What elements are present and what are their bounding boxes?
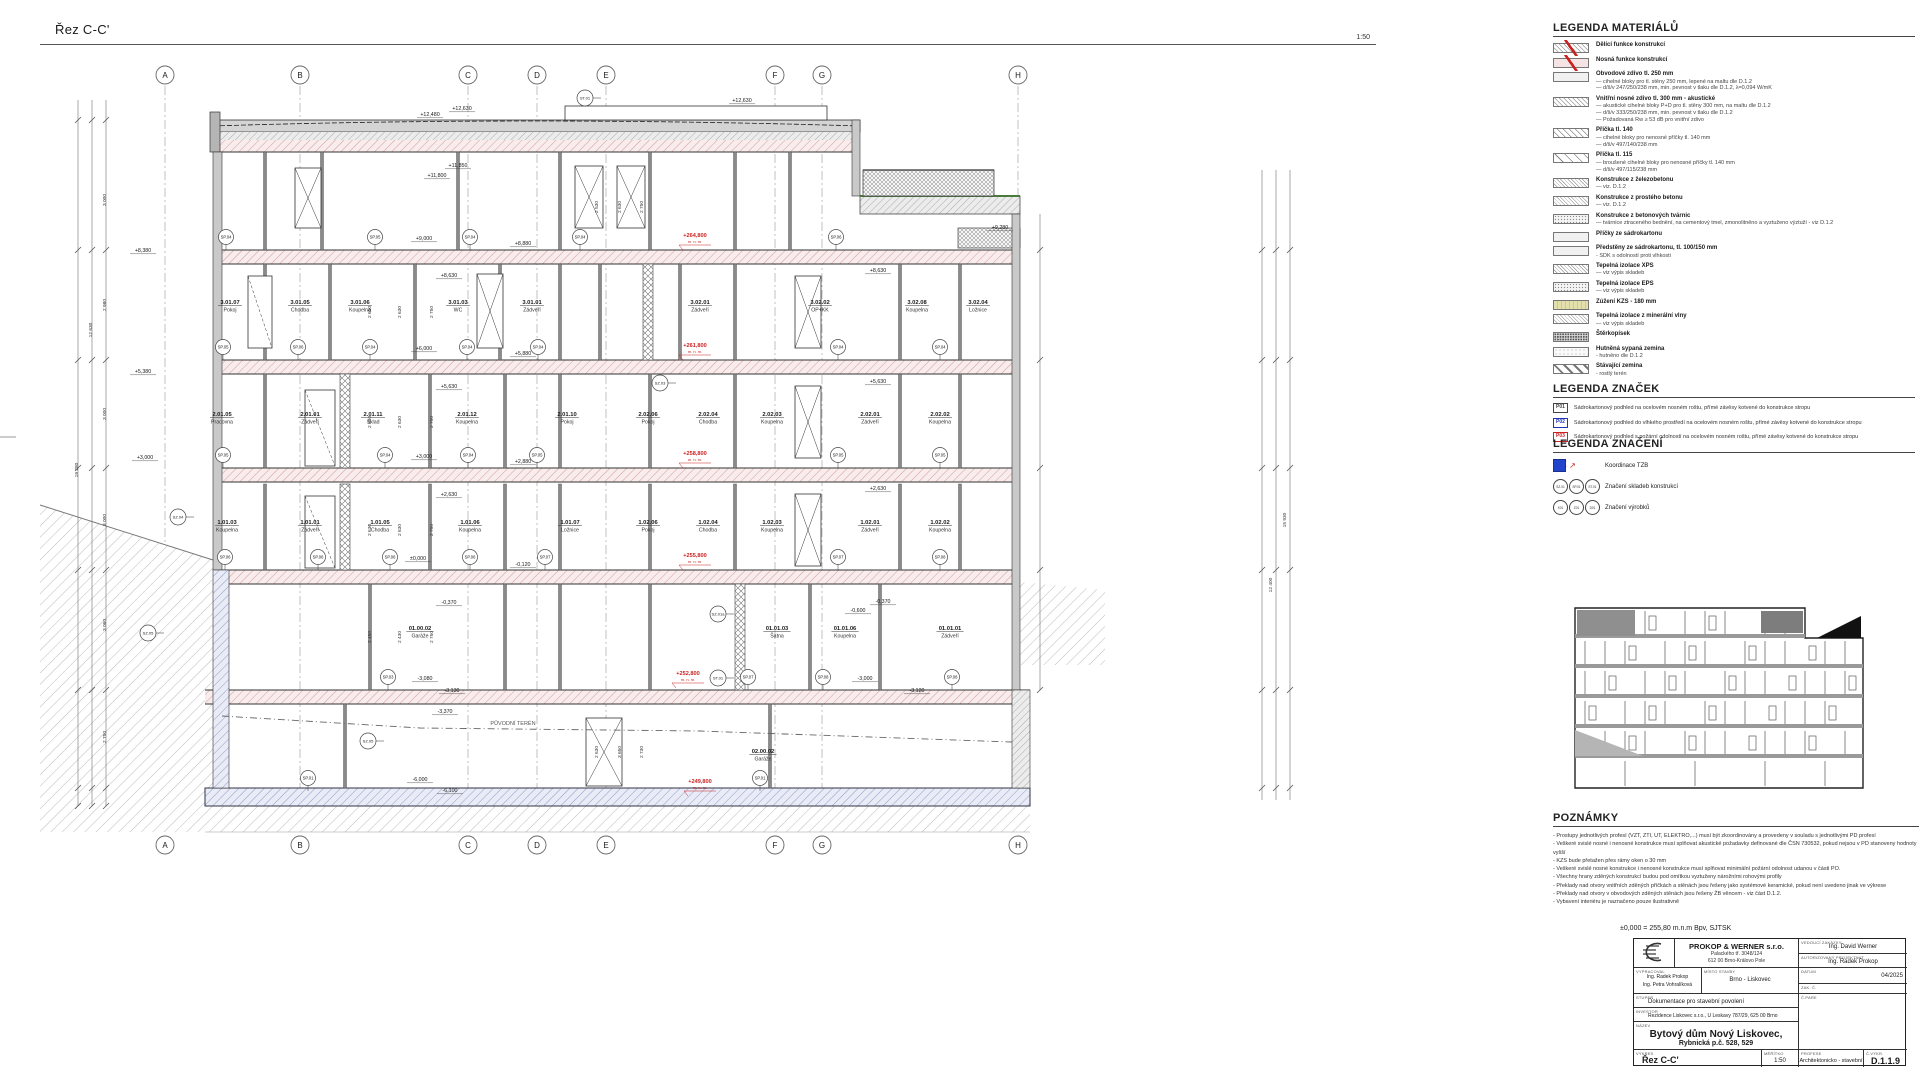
svg-text:±0,000: ±0,000 xyxy=(410,556,426,562)
svg-text:3.01.07: 3.01.07 xyxy=(220,300,239,306)
svg-text:SP.01: SP.01 xyxy=(303,776,315,781)
svg-text:H: H xyxy=(1015,71,1021,80)
svg-text:SP.01: SP.01 xyxy=(755,776,767,781)
svg-text:-6,000: -6,000 xyxy=(412,777,427,783)
svg-text:01.01.03: 01.01.03 xyxy=(766,626,789,632)
roof xyxy=(210,106,1020,214)
legend-material-item: Konstrukce z železobetonu— viz. D.1.2 xyxy=(1553,177,1915,191)
legend-material-item: Tepelná izolace EPS— viz výpis skladeb xyxy=(1553,281,1915,295)
svg-text:Zádveří: Zádveří xyxy=(301,420,319,426)
material-hatch-swatch xyxy=(1553,128,1589,138)
svg-text:SP.06: SP.06 xyxy=(831,235,843,240)
svg-text:SZ.01a: SZ.01a xyxy=(712,612,726,617)
svg-text:Ložnice: Ložnice xyxy=(561,528,579,534)
svg-text:2.02.03: 2.02.03 xyxy=(762,412,782,418)
notes-list: - Prostupy jednotlivých profesí (VZT, ZT… xyxy=(1553,832,1919,906)
material-description: — d/š/v 333/250/238 mm, min. pevnost v t… xyxy=(1596,110,1771,117)
svg-text:C: C xyxy=(465,71,471,80)
svg-text:2 750: 2 750 xyxy=(429,631,435,643)
scale-value: 1:50 xyxy=(1762,1058,1798,1064)
marker-circle: Z01 xyxy=(1569,500,1584,515)
svg-text:D: D xyxy=(534,841,540,850)
svg-text:m. n. m.: m. n. m. xyxy=(688,457,702,462)
svg-text:02.00.02: 02.00.02 xyxy=(752,749,775,755)
svg-text:1.01.03: 1.01.03 xyxy=(217,520,237,526)
svg-text:SP.04: SP.04 xyxy=(465,235,477,240)
authorized-engineer: Ing. Radek Prokop xyxy=(1799,959,1907,965)
svg-text:Koupelna: Koupelna xyxy=(456,420,478,426)
note-line: - Veškeré svislé nosné i nenosné konstru… xyxy=(1553,840,1919,857)
legend-symbols: LEGENDA ZNAČENÍ ✕↗Koordinace TZBSZ.01SP.… xyxy=(1553,438,1915,521)
svg-text:SP.03: SP.03 xyxy=(383,675,395,680)
material-description: - SDK s odolností proti vlhkosti xyxy=(1596,253,1717,260)
svg-text:2.01.11: 2.01.11 xyxy=(363,412,383,418)
svg-text:19 280: 19 280 xyxy=(74,462,80,477)
svg-text:+11,800: +11,800 xyxy=(428,173,447,179)
company-logo xyxy=(1634,939,1672,965)
svg-text:2 630: 2 630 xyxy=(617,201,623,213)
svg-text:Pokoj: Pokoj xyxy=(561,420,574,426)
legend-marks-title: LEGENDA ZNAČEK xyxy=(1553,383,1915,398)
svg-text:m. n. m.: m. n. m. xyxy=(688,239,702,244)
material-hatch-swatch xyxy=(1553,58,1589,68)
svg-text:Zádveří: Zádveří xyxy=(861,528,879,534)
svg-text:3.01.05: 3.01.05 xyxy=(290,300,310,306)
legend-material-item: Stávající zemina- rostlý terén xyxy=(1553,363,1915,377)
legend-symbol-item: SZ.01SP.01ST.01Značení skladeb konstrukc… xyxy=(1553,479,1915,494)
svg-text:SP.04: SP.04 xyxy=(463,453,475,458)
material-hatch-swatch xyxy=(1553,153,1589,163)
svg-text:+12,630: +12,630 xyxy=(732,98,751,104)
svg-text:01.00.02: 01.00.02 xyxy=(409,626,432,632)
legend-material-item: Obvodové zdivo tl. 250 mm— cihelné bloky… xyxy=(1553,71,1915,92)
material-hatch-swatch xyxy=(1553,246,1589,256)
material-hatch-swatch xyxy=(1553,300,1589,310)
mark-code-chip: P01 xyxy=(1553,403,1568,413)
svg-text:Pokoj: Pokoj xyxy=(642,528,655,534)
svg-text:SZ.05: SZ.05 xyxy=(143,631,154,636)
svg-text:Koupelna: Koupelna xyxy=(761,420,783,426)
svg-text:SP.05: SP.05 xyxy=(370,235,382,240)
legend-material-item: Konstrukce z prostého betonu— viz. D.1.2 xyxy=(1553,195,1915,209)
svg-text:3 000: 3 000 xyxy=(102,194,108,206)
legend-material-item: Tepelná izolace z minerální vlny— viz vý… xyxy=(1553,313,1915,327)
svg-text:D: D xyxy=(534,71,540,80)
svg-text:2 530: 2 530 xyxy=(594,201,600,213)
site: Brno - Liskovec xyxy=(1702,977,1798,983)
svg-text:Garáže: Garáže xyxy=(754,757,771,763)
svg-text:Zádveří: Zádveří xyxy=(523,308,541,314)
svg-text:+6,000: +6,000 xyxy=(416,346,432,352)
svg-text:+8,380: +8,380 xyxy=(135,248,151,254)
svg-text:-3,120: -3,120 xyxy=(909,688,924,694)
profession: Architektonicko - stavební xyxy=(1799,1058,1863,1064)
material-hatch-swatch xyxy=(1553,232,1589,242)
marker-circle: SP.01 xyxy=(1569,479,1584,494)
svg-text:OP+KK: OP+KK xyxy=(811,308,829,314)
material-description: — broušené cihelné bloky pro nenosné pří… xyxy=(1596,160,1735,167)
svg-text:2.01.01: 2.01.01 xyxy=(300,412,320,418)
svg-text:Koupelna: Koupelna xyxy=(216,528,238,534)
svg-text:Koupelna: Koupelna xyxy=(761,528,783,534)
legend-materials-title: LEGENDA MATERIÁLŮ xyxy=(1553,22,1915,37)
legend-marks: LEGENDA ZNAČEK P01Sádrokartonový podhled… xyxy=(1553,383,1915,447)
svg-text:2 750: 2 750 xyxy=(429,416,435,428)
svg-text:SP.04: SP.04 xyxy=(380,453,392,458)
svg-text:3 650: 3 650 xyxy=(617,746,623,758)
svg-text:F: F xyxy=(773,71,778,80)
material-title: Příčka tl. 115 xyxy=(1596,152,1735,160)
legend-materials-list: Dělící funkce konstrukcíNosná funkce kon… xyxy=(1553,42,1915,378)
symbol-label: Značení výrobků xyxy=(1605,505,1649,511)
svg-text:2.01.05: 2.01.05 xyxy=(212,412,232,418)
svg-text:SP.06: SP.06 xyxy=(313,555,325,560)
svg-text:B: B xyxy=(297,71,302,80)
svg-text:2 980: 2 980 xyxy=(102,299,108,311)
svg-text:+2,880: +2,880 xyxy=(515,459,531,465)
svg-text:12 630: 12 630 xyxy=(88,322,94,337)
notes-title: POZNÁMKY xyxy=(1553,812,1919,827)
legend-mark-item: P01Sádrokartonový podhled na ocelovém no… xyxy=(1553,403,1915,413)
svg-text:2 430: 2 430 xyxy=(397,631,403,643)
material-description: — viz. D.1.2 xyxy=(1596,202,1683,209)
svg-text:-3,370: -3,370 xyxy=(437,709,452,715)
svg-text:SZ.04: SZ.04 xyxy=(173,515,184,520)
svg-text:01.01.01: 01.01.01 xyxy=(939,626,962,632)
svg-text:F: F xyxy=(773,841,778,850)
legend-material-item: Tepelná izolace XPS— viz výpis skladeb xyxy=(1553,263,1915,277)
svg-text:A: A xyxy=(162,71,168,80)
svg-text:Chodba: Chodba xyxy=(291,308,309,314)
svg-text:SZ.05: SZ.05 xyxy=(363,739,374,744)
svg-text:2 630: 2 630 xyxy=(397,524,403,536)
svg-text:+9,000: +9,000 xyxy=(416,236,432,242)
firm-address: Palackého tř. 3048/124612 00 Brno-Králov… xyxy=(1675,951,1798,964)
svg-text:SP.06: SP.06 xyxy=(293,345,305,350)
svg-text:15 930: 15 930 xyxy=(1282,512,1288,527)
project-name-2: Rybnická p.č. 528, 529 xyxy=(1634,1040,1798,1047)
firm-name: PROKOP & WERNER s.r.o. xyxy=(1675,942,1798,951)
note-line: - Překlady nad otvory v obvodových zděný… xyxy=(1553,890,1919,898)
svg-text:3.02.01: 3.02.01 xyxy=(690,300,710,306)
svg-text:PŮVODNÍ TERÉN: PŮVODNÍ TERÉN xyxy=(490,720,535,727)
svg-text:A: A xyxy=(162,841,168,850)
svg-text:-0,120: -0,120 xyxy=(515,562,530,568)
svg-text:2 730: 2 730 xyxy=(639,746,645,758)
project-name-1: Bytový dům Nový Liskovec, xyxy=(1634,1029,1798,1040)
svg-text:Zádveří: Zádveří xyxy=(941,634,959,640)
material-title: Dělící funkce konstrukcí xyxy=(1596,42,1665,50)
svg-text:1.01.01: 1.01.01 xyxy=(300,520,320,526)
svg-text:3 000: 3 000 xyxy=(102,408,108,420)
material-title: Zúžení KZS - 180 mm xyxy=(1596,299,1656,307)
label-scale: MĚŘÍTKO xyxy=(1764,1051,1784,1056)
legend-material-item: Předstěny ze sádrokartonu, tl. 100/150 m… xyxy=(1553,245,1915,259)
svg-text:+5,630: +5,630 xyxy=(441,384,457,390)
svg-text:2.01.12: 2.01.12 xyxy=(457,412,476,418)
svg-text:Chodba: Chodba xyxy=(699,528,717,534)
svg-text:SZ.03: SZ.03 xyxy=(655,381,666,386)
svg-text:SP.07: SP.07 xyxy=(833,555,845,560)
material-title: Hutněná sypaná zemina xyxy=(1596,346,1664,354)
marker-circles-icon: SZ.01SP.01ST.01 xyxy=(1553,479,1605,494)
material-hatch-swatch xyxy=(1553,282,1589,292)
svg-text:2 450: 2 450 xyxy=(367,631,373,643)
svg-text:E: E xyxy=(603,841,608,850)
svg-text:+9,280: +9,280 xyxy=(992,225,1008,231)
svg-text:E: E xyxy=(603,71,608,80)
mark-description: Sádrokartonový podhled na ocelovém nosné… xyxy=(1574,405,1810,411)
drawing-sheet: { "sheet": { "title": "Řez C-C'", "scale… xyxy=(0,0,1920,1086)
material-title: Příčky ze sádrokartonu xyxy=(1596,231,1662,239)
svg-text:12 400: 12 400 xyxy=(1268,577,1274,592)
material-hatch-swatch xyxy=(1553,43,1589,53)
svg-text:2 650: 2 650 xyxy=(367,416,373,428)
svg-text:SP.04: SP.04 xyxy=(462,345,474,350)
svg-text:01.01.06: 01.01.06 xyxy=(834,626,857,632)
material-title: Vnitřní nosné zdivo tl. 300 mm - akustic… xyxy=(1596,96,1771,104)
svg-text:Ložnice: Ložnice xyxy=(969,308,987,314)
material-hatch-swatch xyxy=(1553,196,1589,206)
material-title: Obvodové zdivo tl. 250 mm xyxy=(1596,71,1772,79)
material-title: Nosná funkce konstrukcí xyxy=(1596,57,1667,65)
material-title: Stávající zemina xyxy=(1596,363,1642,371)
material-description: — d/š/v 247/250/238 mm, min. pevnost v t… xyxy=(1596,85,1772,92)
material-description: — akustické cihelné bloky P+D pro tl. st… xyxy=(1596,103,1771,110)
svg-text:-6,100: -6,100 xyxy=(442,788,457,794)
svg-text:SP.05: SP.05 xyxy=(935,453,947,458)
legend-material-item: Konstrukce z betonových tvárnic— tvárnic… xyxy=(1553,213,1915,227)
svg-text:2.02.01: 2.02.01 xyxy=(860,412,880,418)
svg-text:Zádveří: Zádveří xyxy=(861,420,879,426)
note-line: - KZS bude přetažen přes rámy oken o 30 … xyxy=(1553,857,1919,865)
material-title: Tepelná izolace z minerální vlny xyxy=(1596,313,1687,321)
svg-text:m. n. m.: m. n. m. xyxy=(681,677,695,682)
svg-text:SP.05: SP.05 xyxy=(218,453,230,458)
svg-text:-0,600: -0,600 xyxy=(850,608,865,614)
note-line: - Veškeré svislé nosné konstrukce i neno… xyxy=(1553,865,1919,873)
foundation-slab xyxy=(205,788,1030,806)
svg-text:Koupelna: Koupelna xyxy=(906,308,928,314)
marker-circles-icon: X01Z01D01 xyxy=(1553,500,1605,515)
svg-text:+2,630: +2,630 xyxy=(441,492,457,498)
drawing-name: Řez C-C' xyxy=(1634,1055,1761,1065)
material-title: Předstěny ze sádrokartonu, tl. 100/150 m… xyxy=(1596,245,1717,253)
legend-materials: LEGENDA MATERIÁLŮ Dělící funkce konstruk… xyxy=(1553,22,1915,381)
material-hatch-swatch xyxy=(1553,264,1589,274)
marker-circle: ST.01 xyxy=(1585,479,1600,494)
svg-text:Koupelna: Koupelna xyxy=(929,420,951,426)
svg-text:+5,880: +5,880 xyxy=(515,351,531,357)
svg-text:-3,000: -3,000 xyxy=(857,676,872,682)
material-hatch-swatch xyxy=(1553,314,1589,324)
svg-text:1.02.06: 1.02.06 xyxy=(638,520,658,526)
svg-text:m. n. m.: m. n. m. xyxy=(688,349,702,354)
svg-text:SP.06: SP.06 xyxy=(385,555,397,560)
svg-text:1.02.04: 1.02.04 xyxy=(698,520,718,526)
svg-text:SP.04: SP.04 xyxy=(221,235,233,240)
datum-note: ±0,000 = 255,80 m.n.m Bpv, SJTSK xyxy=(1620,925,1731,932)
svg-text:SP.07: SP.07 xyxy=(743,675,755,680)
legend-material-item: Štěrkopísek xyxy=(1553,331,1915,342)
material-title: Tepelná izolace XPS xyxy=(1596,263,1654,271)
legend-material-item: Zúžení KZS - 180 mm xyxy=(1553,299,1915,310)
material-title: Konstrukce z železobetonu xyxy=(1596,177,1673,185)
svg-text:SP.07: SP.07 xyxy=(540,555,552,560)
legend-symbol-item: ✕↗Koordinace TZB xyxy=(1553,458,1915,473)
marker-circle: X01 xyxy=(1553,500,1568,515)
svg-text:SP.04: SP.04 xyxy=(833,345,845,350)
legend-material-item: Nosná funkce konstrukcí xyxy=(1553,57,1915,68)
svg-text:1.02.03: 1.02.03 xyxy=(762,520,782,526)
note-line: - Překlady nad otvory vnitřních zděných … xyxy=(1553,882,1919,890)
symbol-label: Značení skladeb konstrukcí xyxy=(1605,484,1678,490)
svg-text:2 630: 2 630 xyxy=(397,306,403,318)
legend-material-item: Dělící funkce konstrukcí xyxy=(1553,42,1915,53)
svg-text:1.02.01: 1.02.01 xyxy=(860,520,880,526)
svg-text:SP.08: SP.08 xyxy=(947,675,959,680)
legend-material-item: Hutněná sypaná zemina- hutněno dle D.1.2 xyxy=(1553,346,1915,360)
svg-text:ST.01: ST.01 xyxy=(713,676,724,681)
svg-text:3 000: 3 000 xyxy=(102,514,108,526)
svg-text:+5,630: +5,630 xyxy=(870,379,886,385)
svg-text:SP.08: SP.08 xyxy=(818,675,830,680)
legend-symbol-item: X01Z01D01Značení výrobků xyxy=(1553,500,1915,515)
svg-text:+3,000: +3,000 xyxy=(137,455,153,461)
svg-text:SP.04: SP.04 xyxy=(365,345,377,350)
label-copy-no: Č.PARE xyxy=(1801,995,1817,1000)
svg-text:m. n. m.: m. n. m. xyxy=(688,559,702,564)
material-description: — viz výpis skladeb xyxy=(1596,288,1654,295)
note-line: - Všechny hrany zděných konstrukcí budou… xyxy=(1553,873,1919,881)
svg-text:1.01.06: 1.01.06 xyxy=(460,520,480,526)
svg-text:WC: WC xyxy=(454,308,463,314)
material-description: — cihelné bloky pro nenosné příčky tl. 1… xyxy=(1596,135,1710,142)
svg-text:3.01.03: 3.01.03 xyxy=(448,300,468,306)
legend-material-item: Příčky ze sádrokartonu xyxy=(1553,231,1915,242)
svg-text:2.01.10: 2.01.10 xyxy=(557,412,576,418)
svg-text:3.02.02: 3.02.02 xyxy=(810,300,829,306)
note-line: - Vybavení interiéru je naznačeno pouze … xyxy=(1553,898,1919,906)
svg-text:+8,630: +8,630 xyxy=(870,268,886,274)
label-order-no: ZAK. Č. xyxy=(1801,985,1816,990)
svg-text:2 630: 2 630 xyxy=(594,746,600,758)
svg-text:+12,630: +12,630 xyxy=(452,106,471,112)
tzb-coordination-icon: ✕↗ xyxy=(1553,459,1605,472)
made-by-1: Ing. Radek Prokop xyxy=(1634,974,1701,980)
svg-text:C: C xyxy=(465,841,471,850)
material-title: Konstrukce z betonových tvárnic xyxy=(1596,213,1833,221)
svg-text:2 750: 2 750 xyxy=(429,524,435,536)
material-description: — viz. D.1.2 xyxy=(1596,184,1673,191)
stage: Dokumentace pro stavební povolení xyxy=(1634,999,1798,1005)
svg-text:SP.06: SP.06 xyxy=(465,555,477,560)
svg-text:SP.04: SP.04 xyxy=(575,235,587,240)
svg-text:2 750: 2 750 xyxy=(429,306,435,318)
material-description: — Požadovaná Rw ≥ 53 dB pro vnitřní zdiv… xyxy=(1596,117,1771,124)
material-title: Štěrkopísek xyxy=(1596,331,1630,339)
svg-text:Pracovna: Pracovna xyxy=(211,420,233,426)
svg-text:2 750: 2 750 xyxy=(102,731,108,743)
material-hatch-swatch xyxy=(1553,364,1589,374)
svg-text:-3,130: -3,130 xyxy=(444,688,459,694)
svg-text:+2,630: +2,630 xyxy=(870,486,886,492)
svg-text:Pokoj: Pokoj xyxy=(224,308,237,314)
legend-symbols-list: ✕↗Koordinace TZBSZ.01SP.01ST.01Značení s… xyxy=(1553,458,1915,515)
material-description: — tvárnice ztraceného bednění, na cement… xyxy=(1596,220,1833,227)
material-title: Tepelná izolace EPS xyxy=(1596,281,1654,289)
svg-text:2 750: 2 750 xyxy=(639,201,645,213)
material-title: Konstrukce z prostého betonu xyxy=(1596,195,1683,203)
material-description: - hutněno dle D.1.2 xyxy=(1596,353,1664,360)
svg-text:Chodba: Chodba xyxy=(371,528,389,534)
svg-text:+8,630: +8,630 xyxy=(441,273,457,279)
label-project-name: NÁZEV xyxy=(1636,1023,1650,1028)
svg-text:Zádveří: Zádveří xyxy=(301,528,319,534)
svg-text:1.01.05: 1.01.05 xyxy=(370,520,390,526)
material-hatch-swatch xyxy=(1553,97,1589,107)
investor: Rezidence Liskovec s.r.o., U Leskavy 787… xyxy=(1634,1013,1798,1019)
legend-symbols-title: LEGENDA ZNAČENÍ xyxy=(1553,438,1915,453)
svg-text:Koupelna: Koupelna xyxy=(929,528,951,534)
svg-text:Chodba: Chodba xyxy=(699,420,717,426)
material-description: — d/š/v 497/115/238 mm xyxy=(1596,167,1735,174)
svg-text:2 650: 2 650 xyxy=(367,306,373,318)
svg-text:-0,370: -0,370 xyxy=(875,599,890,605)
svg-text:G: G xyxy=(819,71,825,80)
svg-text:Garáže: Garáže xyxy=(411,634,428,640)
svg-text:SP.08: SP.08 xyxy=(935,555,947,560)
svg-text:ST.01: ST.01 xyxy=(580,96,591,101)
material-description: — cihelné bloky pro tl. stěny 250 mm, le… xyxy=(1596,79,1772,86)
svg-text:SP.05: SP.05 xyxy=(833,453,845,458)
svg-text:Pokoj: Pokoj xyxy=(642,420,655,426)
drawing-number: D.1.1.9 xyxy=(1864,1056,1907,1066)
symbol-label: Koordinace TZB xyxy=(1605,463,1648,469)
svg-text:2 630: 2 630 xyxy=(367,524,373,536)
label-profession: PROFESE xyxy=(1801,1051,1822,1056)
svg-text:G: G xyxy=(819,841,825,850)
svg-text:H: H xyxy=(1015,841,1021,850)
mark-description: Sádrokartonový podhled do vlhkého prostř… xyxy=(1574,420,1862,426)
svg-text:SP.06: SP.06 xyxy=(220,555,232,560)
svg-text:m. n. m.: m. n. m. xyxy=(693,785,707,790)
title-block: PROKOP & WERNER s.r.o. Palackého tř. 304… xyxy=(1633,938,1906,1066)
material-hatch-swatch xyxy=(1553,214,1589,224)
marker-circle: D01 xyxy=(1585,500,1600,515)
svg-text:2.02.04: 2.02.04 xyxy=(698,412,718,418)
material-hatch-swatch xyxy=(1553,72,1589,82)
svg-text:+12,480: +12,480 xyxy=(420,112,439,118)
svg-text:2.02.06: 2.02.06 xyxy=(638,412,658,418)
marker-circle: SZ.01 xyxy=(1553,479,1568,494)
svg-text:Koupelna: Koupelna xyxy=(459,528,481,534)
svg-text:2 630: 2 630 xyxy=(397,416,403,428)
svg-text:+8,880: +8,880 xyxy=(515,241,531,247)
svg-text:+5,380: +5,380 xyxy=(135,369,151,375)
section-drawing: AABBCCDDEEFFGGHHPŮVODNÍ TERÉN3.01.07Poko… xyxy=(0,0,1400,880)
material-description: — viz výpis skladeb xyxy=(1596,321,1687,328)
svg-text:3.02.04: 3.02.04 xyxy=(968,300,988,306)
svg-text:-0,370: -0,370 xyxy=(441,600,456,606)
legend-material-item: Příčka tl. 115— broušené cihelné bloky p… xyxy=(1553,152,1915,173)
legend-marks-list: P01Sádrokartonový podhled na ocelovém no… xyxy=(1553,403,1915,442)
material-description: — d/š/v 497/140/238 mm xyxy=(1596,142,1710,149)
svg-text:2.02.02: 2.02.02 xyxy=(930,412,949,418)
material-hatch-swatch xyxy=(1553,178,1589,188)
svg-text:Koupelna: Koupelna xyxy=(834,634,856,640)
svg-text:1.01.07: 1.01.07 xyxy=(560,520,579,526)
